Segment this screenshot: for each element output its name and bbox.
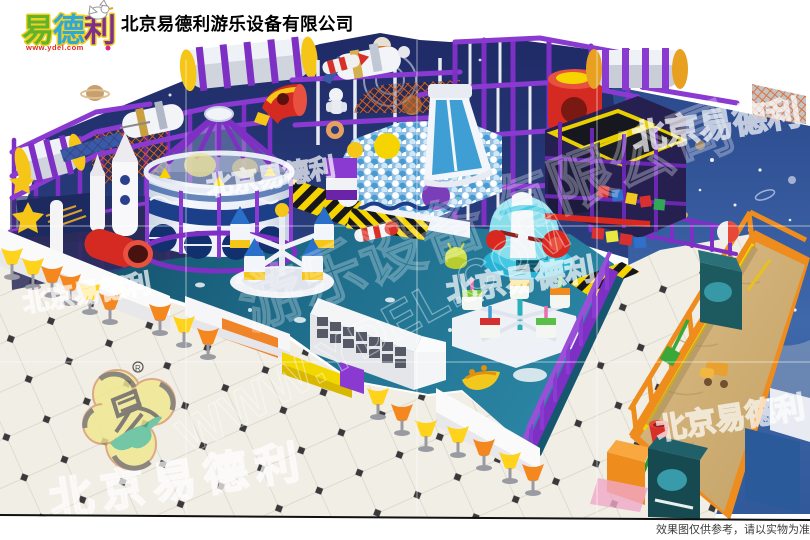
- svg-text:北京易德利游乐设备有限公司: 北京易德利游乐设备有限公司: [121, 14, 354, 34]
- svg-text:www.ydel.com: www.ydel.com: [25, 43, 84, 52]
- svg-text:R: R: [135, 364, 141, 373]
- svg-text:效果图仅供参考，请以实物为准*: 效果图仅供参考，请以实物为准*: [656, 522, 810, 536]
